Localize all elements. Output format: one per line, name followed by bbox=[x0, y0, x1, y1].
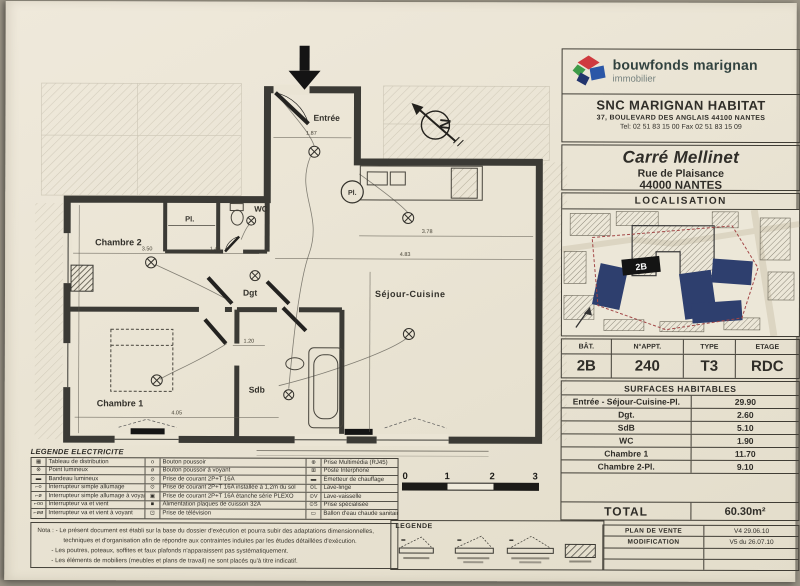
unit-table: BÂT. N°APPT. TYPE ETAGE 2B 240 T3 RDC bbox=[561, 338, 800, 379]
localisation-block: LOCALISATION bbox=[561, 192, 800, 337]
switch-indicator-icon: ⌐ø bbox=[31, 492, 46, 500]
brand-name: bouwfonds marignan bbox=[613, 57, 758, 73]
window-legend: LEGENDE bbox=[390, 520, 604, 571]
surfaces-total-row: TOTAL 60.30m² bbox=[561, 501, 798, 520]
waterproof-socket-icon: ▣ bbox=[145, 492, 160, 500]
svg-text:3.50: 3.50 bbox=[142, 246, 153, 252]
window-legend-title: LEGENDE bbox=[391, 521, 603, 531]
svg-text:0: 0 bbox=[403, 471, 408, 482]
localisation-title: LOCALISATION bbox=[562, 193, 799, 210]
intercom-icon: ⊞ bbox=[307, 467, 322, 475]
unit-header-bat: BÂT. bbox=[562, 339, 612, 353]
window-symbol bbox=[399, 537, 433, 559]
window-symbol bbox=[455, 536, 493, 563]
svg-text:N: N bbox=[435, 118, 453, 131]
surfaces-title: SURFACES HABITABLES bbox=[562, 381, 799, 396]
table-row: Chambre 2-Pl. 9.10 bbox=[562, 460, 799, 474]
wall-hatch-symbol bbox=[565, 544, 595, 562]
water-heater-icon: ▭ bbox=[306, 510, 321, 519]
table-row: WC 1.90 bbox=[562, 434, 799, 448]
company-name: SNC MARIGNAN HABITAT bbox=[562, 97, 799, 113]
table-row bbox=[603, 548, 798, 560]
project-name: Carré Mellinet bbox=[562, 145, 799, 168]
electrical-legend: LEGENDE ELECTRICITE ▦ Tableau de distrib… bbox=[30, 447, 398, 519]
tv-socket-icon: ⊡ bbox=[145, 509, 160, 518]
power-socket-icon: ⊙ bbox=[145, 475, 160, 483]
push-button-indicator-icon: ø bbox=[146, 467, 161, 475]
scale-bar: 0 1 2 3 bbox=[400, 468, 542, 502]
revision-table: PLAN DE VENTE V4 29.06.10 MODIFICATION V… bbox=[602, 525, 799, 572]
company-title-block: bouwfonds marignan immobilier SNC MARIGN… bbox=[561, 48, 800, 143]
raised-socket-icon: ⊙ bbox=[145, 484, 160, 492]
table-row: Dgt. 2.60 bbox=[562, 408, 799, 422]
company-address: 37, BOULEVARD DES ANGLAIS 44100 NANTES bbox=[562, 114, 799, 122]
nota-label: Nota : bbox=[37, 527, 54, 534]
svg-text:3: 3 bbox=[533, 471, 538, 482]
unit-header-etage: ETAGE bbox=[736, 340, 799, 354]
unit-value-appt: 240 bbox=[612, 355, 684, 378]
brand-subtitle: immobilier bbox=[613, 74, 656, 85]
svg-text:2B: 2B bbox=[635, 261, 648, 272]
table-row: Chambre 1 11.70 bbox=[562, 447, 799, 461]
window-symbols bbox=[395, 534, 599, 569]
bouwfonds-logo-icon bbox=[572, 54, 608, 88]
unit-value-etage: RDC bbox=[736, 355, 799, 378]
electrical-legend-title: LEGENDE ELECTRICITE bbox=[31, 447, 399, 457]
table-row: Entrée - Séjour-Cuisine-Pl. 29.90 bbox=[562, 395, 799, 409]
table-row: MODIFICATION V5 du 26.07.10 bbox=[603, 537, 798, 549]
svg-text:1.87: 1.87 bbox=[306, 131, 317, 137]
table-row: PLAN DE VENTE V4 29.06.10 bbox=[603, 526, 798, 538]
windows bbox=[63, 233, 490, 456]
surfaces-table: SURFACES HABITABLES Entrée - Séjour-Cuis… bbox=[560, 380, 799, 521]
total-label: TOTAL bbox=[561, 502, 691, 519]
site-map: 2B bbox=[562, 209, 799, 336]
project-city: 44000 NANTES bbox=[562, 179, 799, 192]
placard-circle: Pl. bbox=[341, 181, 363, 203]
unit-header-appt: N°APPT. bbox=[612, 340, 684, 354]
svg-text:2: 2 bbox=[490, 471, 495, 482]
floor-plan: 1.87 3.50 1.40 3.78 4.83 1.20 4.05 Entré… bbox=[27, 43, 568, 459]
special-socket-icon: ⊙S bbox=[306, 501, 321, 509]
room-label-sejour: Séjour-Cuisine bbox=[375, 289, 446, 299]
table-row: SdB 5.10 bbox=[562, 421, 799, 435]
company-phone: Tel: 02 51 83 15 00 Fax 02 51 83 15 09 bbox=[562, 123, 799, 131]
washbasin bbox=[286, 358, 304, 370]
unit-value-bat: 2B bbox=[562, 354, 612, 377]
column bbox=[71, 265, 93, 291]
cooktop-supply-icon: ■ bbox=[145, 501, 160, 509]
legend-row: ⌐øø Interrupteur va et vient à voyant ⊡ … bbox=[31, 509, 397, 518]
two-way-switch-icon: ⌐oo bbox=[31, 501, 46, 509]
surrounding-buildings bbox=[35, 83, 568, 440]
dishwasher-socket-icon: ⊙V bbox=[306, 493, 321, 501]
room-label-placard: Pl. bbox=[185, 214, 194, 223]
svg-text:4.05: 4.05 bbox=[171, 410, 182, 416]
svg-text:1.20: 1.20 bbox=[244, 339, 255, 345]
entrance-arrow-icon bbox=[289, 46, 321, 90]
room-label-chambre2: Chambre 2 bbox=[95, 237, 142, 247]
room-label-wc: WC bbox=[254, 205, 268, 214]
toilet bbox=[231, 210, 243, 225]
room-label-dgt: Dgt bbox=[243, 288, 257, 298]
svg-text:1: 1 bbox=[445, 471, 451, 482]
svg-text:1.40: 1.40 bbox=[210, 247, 221, 253]
svg-text:3.78: 3.78 bbox=[422, 229, 433, 235]
light-strip-icon: ▬ bbox=[31, 475, 46, 483]
room-label-entree: Entrée bbox=[313, 113, 340, 123]
svg-text:Pl.: Pl. bbox=[348, 190, 357, 197]
room-label-chambre1: Chambre 1 bbox=[97, 398, 144, 408]
push-button-icon: o bbox=[146, 458, 161, 466]
project-title-block: Carré Mellinet Rue de Plaisance 44000 NA… bbox=[561, 144, 800, 191]
distribution-board-icon: ▦ bbox=[32, 458, 47, 466]
kitchen-sink bbox=[367, 172, 387, 185]
total-value: 60.30m² bbox=[692, 503, 799, 520]
project-street: Rue de Plaisance bbox=[562, 167, 799, 180]
light-point-icon: ⊗ bbox=[32, 467, 47, 475]
room-label-sdb: Sdb bbox=[249, 385, 265, 395]
nota-box: Nota : - Le présent document est établi … bbox=[30, 522, 398, 569]
scanned-sheet: 1.87 3.50 1.40 3.78 4.83 1.20 4.05 Entré… bbox=[4, 1, 797, 582]
rj45-socket-icon: ⊕ bbox=[307, 459, 322, 467]
brand-row: bouwfonds marignan immobilier bbox=[563, 49, 800, 95]
unit-header-type: TYPE bbox=[684, 340, 736, 354]
unit-value-type: T3 bbox=[684, 355, 736, 378]
heater-icon: ▬ bbox=[306, 476, 321, 484]
photo-of-plan: 1.87 3.50 1.40 3.78 4.83 1.20 4.05 Entré… bbox=[0, 0, 800, 586]
table-row bbox=[603, 559, 798, 570]
svg-text:4.83: 4.83 bbox=[400, 252, 411, 258]
switch-icon: ⌐o bbox=[31, 484, 46, 492]
two-way-switch-indicator-icon: ⌐øø bbox=[31, 509, 46, 518]
washer-socket-icon: ⊙L bbox=[306, 484, 321, 492]
window-symbol bbox=[507, 536, 553, 563]
